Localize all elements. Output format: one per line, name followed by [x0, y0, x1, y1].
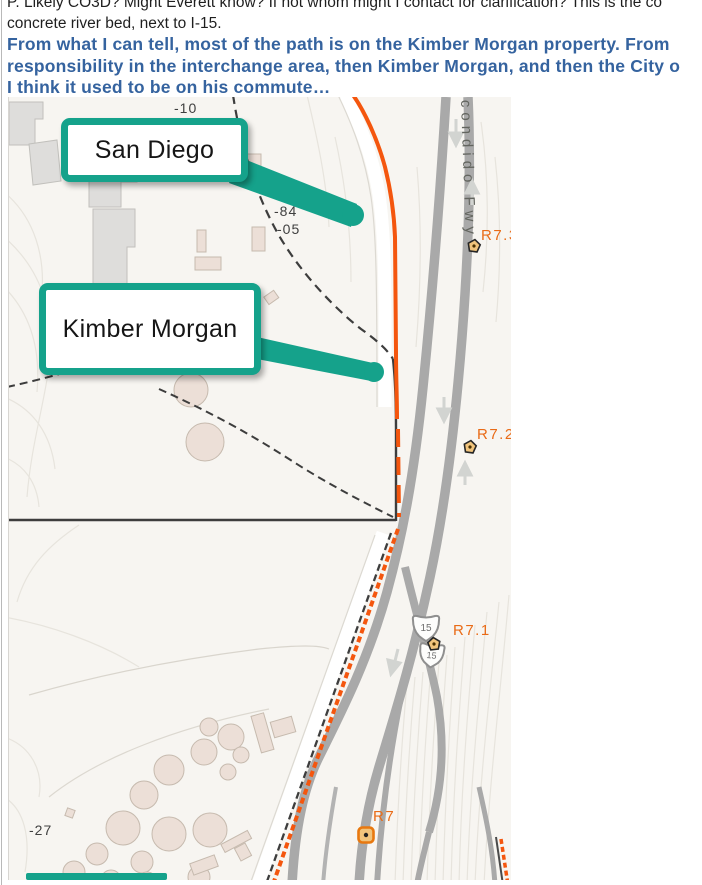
doc-line-2: concrete river bed, next to I-15.	[7, 13, 702, 34]
document-page: P. Likely CO3D? Might Everett know? If n…	[0, 0, 702, 885]
svg-text:15: 15	[420, 623, 432, 634]
callout-san-diego: San Diego	[61, 118, 248, 182]
map-canvas: condido Fwy	[9, 97, 511, 880]
marker-label-r7: R7	[373, 808, 395, 825]
svg-text:15: 15	[426, 650, 437, 661]
doc-emphasis-line-1: From what I can tell, most of the path i…	[7, 34, 702, 56]
elevation-label: -10	[174, 100, 197, 116]
callout-kimber-morgan-label: Kimber Morgan	[63, 315, 238, 344]
marker-label-r7-2: R7.2	[477, 426, 511, 443]
callout-kimber-morgan: Kimber Morgan	[39, 283, 261, 375]
page-border	[1, 0, 2, 885]
leader-sandiego-tip	[342, 204, 364, 226]
marker-label-r7-1: R7.1	[453, 622, 491, 639]
doc-line-1: P. Likely CO3D? Might Everett know? If n…	[7, 0, 702, 13]
doc-emphasis-line-3: I think it used to be on his commute…	[7, 77, 702, 99]
doc-emphasis-line-2: responsibility in the interchange area, …	[7, 56, 702, 78]
elevation-label: -84	[274, 203, 297, 219]
cutoff-callout-edge	[26, 873, 167, 880]
callout-san-diego-label: San Diego	[95, 136, 214, 165]
elevation-label: -27	[29, 822, 52, 838]
leader-kimber-tip	[364, 362, 384, 382]
elevation-label: -05	[277, 221, 300, 237]
marker-r7-icon	[359, 828, 374, 843]
embedded-map-image: condido Fwy	[8, 97, 511, 880]
marker-label-r7-3: R7.3	[481, 227, 511, 244]
document-text: P. Likely CO3D? Might Everett know? If n…	[7, 0, 702, 99]
